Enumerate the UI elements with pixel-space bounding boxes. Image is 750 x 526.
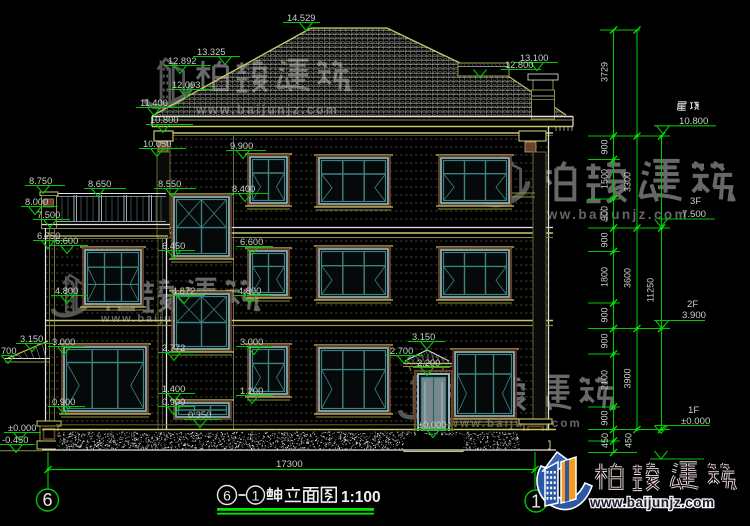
svg-text:1.200: 1.200 [240,386,263,396]
svg-text:8.000: 8.000 [25,197,48,207]
svg-text:11.400: 11.400 [140,98,168,108]
svg-text:10.050: 10.050 [143,139,171,149]
svg-text:900: 900 [600,232,610,247]
svg-text:3900: 3900 [623,368,633,388]
svg-text:1800: 1800 [600,267,610,287]
svg-text:2.200: 2.200 [417,358,440,368]
svg-text:13.325: 13.325 [197,47,225,57]
svg-text:6: 6 [42,490,52,510]
svg-text:1F: 1F [688,405,699,416]
svg-text:4.800: 4.800 [238,286,261,296]
svg-text:12.800: 12.800 [505,60,533,70]
svg-text:1500: 1500 [600,169,610,189]
svg-text:3.150: 3.150 [20,334,43,344]
svg-text:4.800: 4.800 [55,286,78,296]
svg-text:6.450: 6.450 [162,241,185,251]
svg-text:4.872: 4.872 [172,286,195,296]
svg-text:900: 900 [600,333,610,348]
svg-text:3600: 3600 [623,268,633,288]
svg-text:8.400: 8.400 [232,184,255,194]
svg-text:1: 1 [252,488,260,504]
svg-text:1.400: 1.400 [162,384,185,394]
svg-text:3.000: 3.000 [52,337,75,347]
svg-text:6.600: 6.600 [55,236,78,246]
svg-text:www.baijunjz.com: www.baijunjz.com [589,495,715,510]
svg-text:3.000: 3.000 [240,337,263,347]
svg-text:700: 700 [1,346,17,356]
svg-text:11250: 11250 [646,278,656,302]
svg-text:12.892: 12.892 [168,56,196,66]
svg-text:8.550: 8.550 [158,179,181,189]
svg-text:2100: 2100 [600,370,610,390]
svg-text:900: 900 [600,410,610,425]
svg-text:17300: 17300 [276,459,303,470]
svg-text:6.600: 6.600 [240,237,263,247]
svg-text:7.500: 7.500 [682,209,706,220]
svg-text:1:100: 1:100 [341,489,381,506]
svg-text:±0.000: ±0.000 [418,420,446,430]
svg-text:12.093: 12.093 [172,80,200,90]
svg-text:3.150: 3.150 [412,332,435,342]
svg-text:8.650: 8.650 [88,179,111,189]
svg-text:www.baijunjz.com: www.baijunjz.com [448,418,582,430]
svg-text:www.baijunjz.com: www.baijunjz.com [533,207,689,222]
svg-text:9.900: 9.900 [230,141,253,151]
svg-text:900: 900 [600,206,610,221]
svg-text:1: 1 [531,492,541,512]
svg-text:-0.450: -0.450 [2,435,28,445]
svg-text:10.800: 10.800 [150,115,178,125]
svg-text:3300: 3300 [623,172,633,192]
svg-text:±0.000: ±0.000 [8,423,36,433]
svg-text:3.900: 3.900 [682,310,706,321]
svg-text:0.900: 0.900 [52,397,75,407]
svg-text:2F: 2F [687,299,698,310]
svg-text:450: 450 [600,433,610,448]
svg-text:450: 450 [624,433,634,448]
svg-text:900: 900 [600,139,610,154]
svg-text:6: 6 [223,488,231,504]
svg-text:2.772: 2.772 [162,343,185,353]
svg-text:0.350: 0.350 [188,410,211,420]
svg-text:900: 900 [600,307,610,322]
svg-text:0.900: 0.900 [162,397,185,407]
svg-text:8.750: 8.750 [29,176,52,186]
svg-text:3729: 3729 [600,62,610,82]
svg-text:2.700: 2.700 [390,346,413,356]
svg-text:7.500: 7.500 [37,210,60,220]
svg-text:14.529: 14.529 [287,13,315,23]
svg-text:3F: 3F [690,196,701,207]
